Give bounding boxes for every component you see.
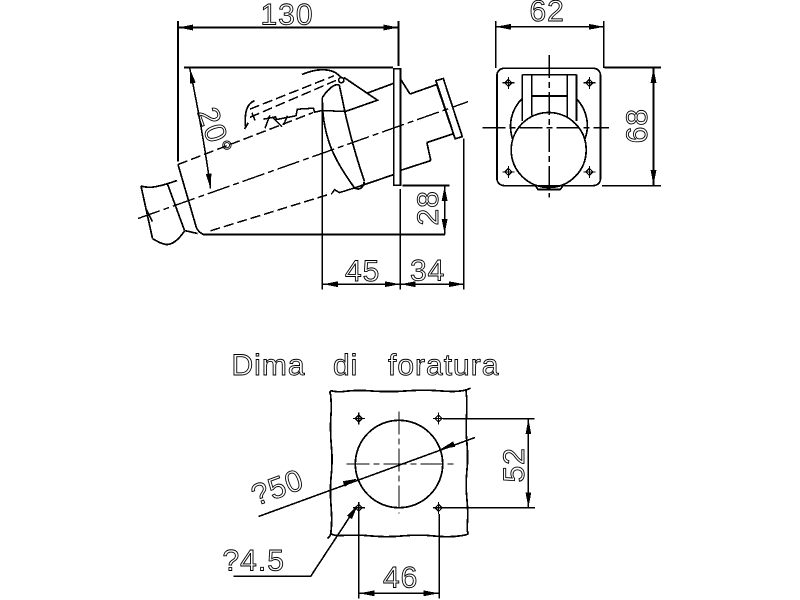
svg-text:52: 52 (498, 447, 531, 482)
svg-text:foratura: foratura (388, 349, 499, 382)
svg-text:di: di (333, 349, 358, 382)
svg-text:28: 28 (412, 190, 445, 225)
svg-text:130: 130 (261, 0, 314, 32)
svg-text:45: 45 (345, 255, 380, 288)
svg-text:62: 62 (530, 0, 565, 28)
svg-text:Dima: Dima (232, 349, 306, 382)
svg-text:?4.5: ?4.5 (223, 545, 285, 578)
svg-text:46: 46 (383, 562, 418, 595)
svg-text:34: 34 (410, 255, 445, 288)
svg-text:68: 68 (621, 108, 654, 143)
